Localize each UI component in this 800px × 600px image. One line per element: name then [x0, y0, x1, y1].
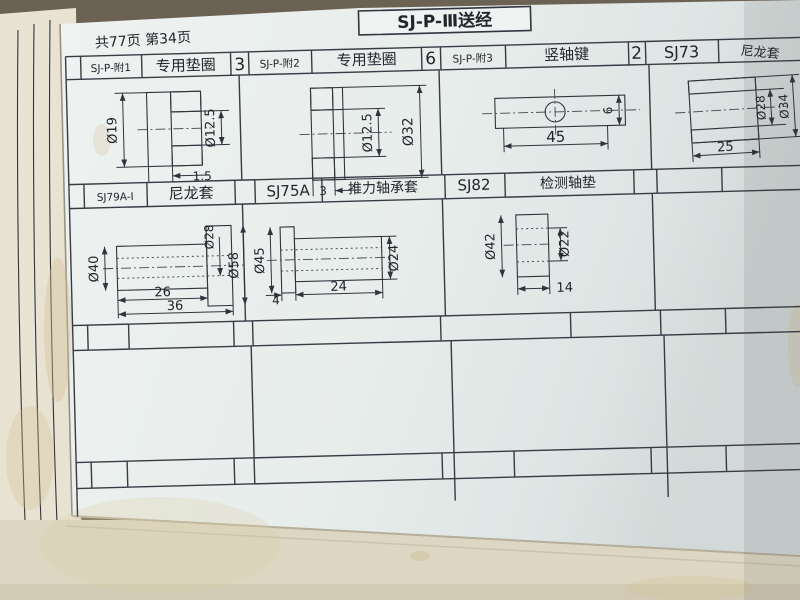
- dim-label: 36: [167, 299, 184, 314]
- dim-label: 4: [272, 293, 280, 307]
- dim-label: 3: [319, 184, 327, 198]
- part-name: 竖轴键: [544, 45, 589, 64]
- part-name: 专用垫圈: [156, 56, 216, 76]
- part-id: SJ-P-附2: [259, 57, 300, 71]
- dim-label: Ø58: [227, 252, 243, 279]
- part-name: 推力轴承套: [348, 179, 418, 197]
- dim-label: Ø40: [87, 255, 103, 282]
- dim-label: Ø12.5: [203, 108, 219, 148]
- dim-label: 45: [546, 128, 566, 146]
- part-qty: 3: [234, 55, 245, 75]
- part-id: SJ73: [664, 42, 700, 62]
- dim-label: Ø22: [557, 230, 573, 257]
- dim-label: Ø12.5: [360, 113, 376, 153]
- page-canvas: 共77页 第34页 SJ-P-Ⅲ送经: [0, 0, 800, 600]
- page-curl-shadow: [744, 0, 800, 600]
- part-id: SJ-P-附3: [452, 51, 493, 65]
- title-box: SJ-P-Ⅲ送经: [358, 6, 531, 34]
- page-title: SJ-P-Ⅲ送经: [397, 9, 492, 32]
- dim-label: 14: [556, 280, 573, 295]
- part-id: SJ-P-附1: [91, 61, 132, 75]
- dim-label: Ø19: [105, 117, 121, 144]
- dim-label: 24: [330, 279, 347, 294]
- part-name: 专用垫圈: [336, 50, 396, 70]
- dim-label: 1.5: [193, 169, 212, 183]
- part-qty: 2: [631, 44, 642, 64]
- part-name: 检测轴垫: [540, 175, 596, 192]
- part-id: SJ75A: [266, 181, 310, 200]
- dim-label: 25: [717, 140, 734, 156]
- part-id: SJ79A-Ⅰ: [97, 191, 134, 204]
- dim-label: Ø24: [387, 245, 403, 272]
- dim-label: 6: [601, 106, 615, 114]
- dim-label: Ø32: [400, 117, 417, 146]
- scanned-parts-catalog-page: 共77页 第34页 SJ-P-Ⅲ送经: [0, 0, 800, 600]
- dim-label: Ø28: [202, 224, 217, 249]
- dim-label: Ø42: [483, 233, 499, 260]
- part-qty: 6: [425, 49, 436, 69]
- dim-label: Ø45: [253, 247, 269, 274]
- part-id: SJ82: [457, 176, 491, 195]
- part-name: 尼龙套: [168, 184, 213, 203]
